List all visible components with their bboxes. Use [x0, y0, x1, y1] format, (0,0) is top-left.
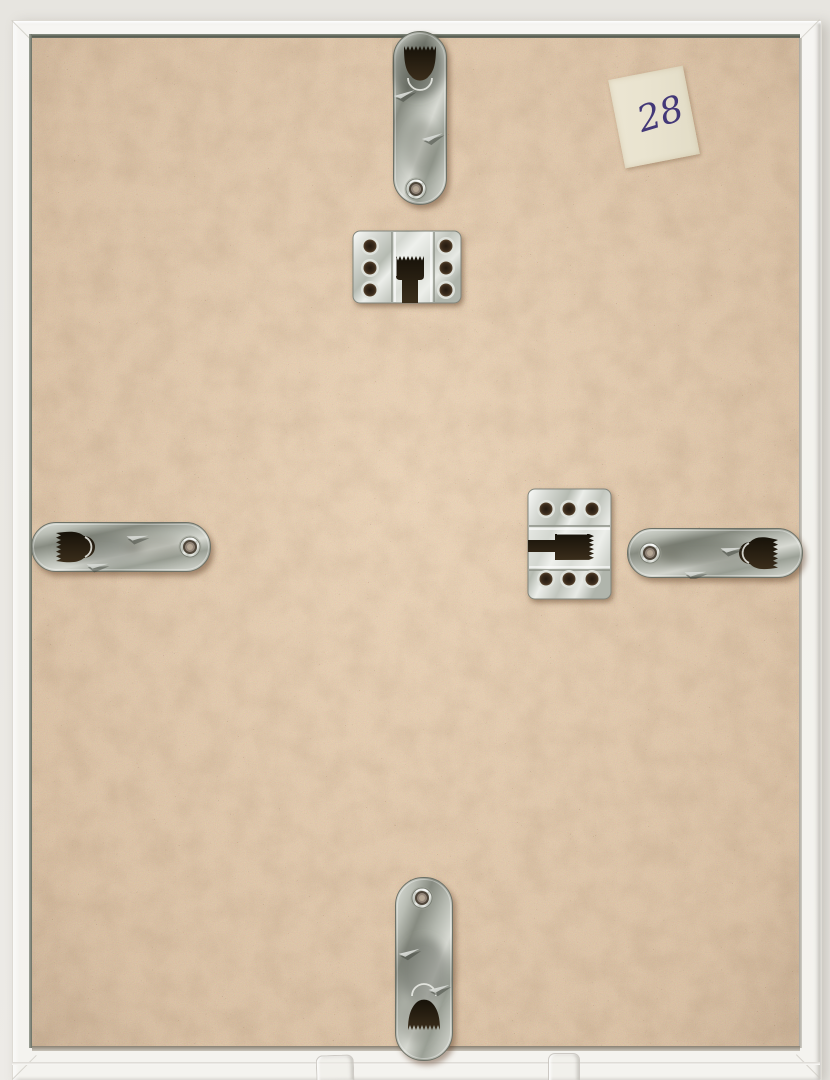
keyhole-strap-hanger-right	[626, 527, 804, 579]
rivet-eyelet	[639, 542, 661, 564]
keyhole-strap-hanger-top	[392, 30, 448, 206]
sawtooth-plate-hanger-right	[527, 488, 612, 600]
frame-bottom-rail-groove	[12, 1062, 820, 1065]
rivet-eyelet	[411, 887, 433, 909]
rivet-eyelet	[179, 536, 201, 558]
photo-scene: 28	[0, 0, 830, 1080]
keyhole-strap-hanger-left	[30, 521, 212, 573]
keyhole-strap-hanger-bottom	[394, 876, 454, 1062]
easel-prong-right	[548, 1053, 580, 1080]
rivet-eyelet	[405, 178, 427, 200]
sawtooth-plate-hanger-upper	[352, 230, 462, 304]
easel-prong-left	[316, 1054, 355, 1080]
handwritten-number: 28	[632, 88, 689, 141]
